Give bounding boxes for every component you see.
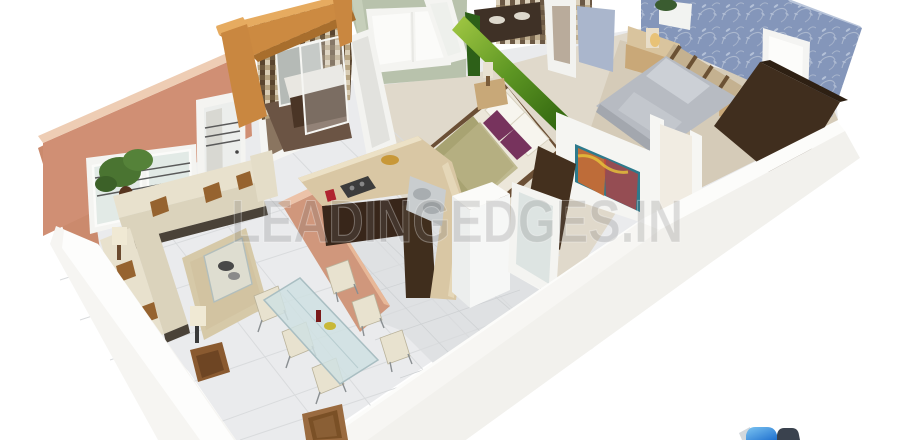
svg-text:LEADINGEDGES.IN: LEADINGEDGES.IN bbox=[231, 188, 683, 255]
